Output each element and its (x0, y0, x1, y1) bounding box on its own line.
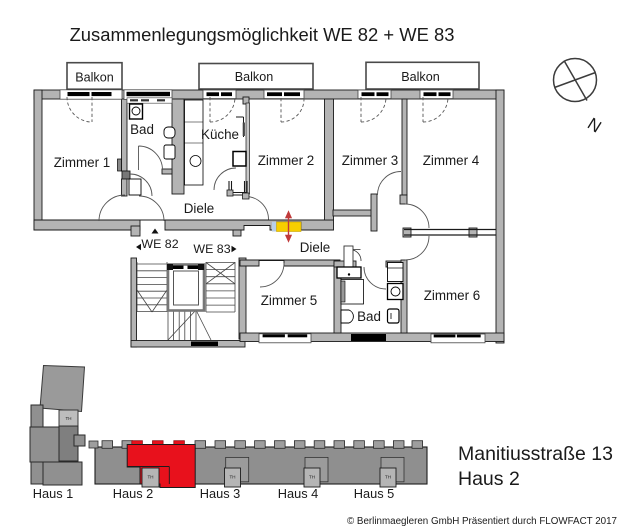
svg-text:TH: TH (66, 416, 72, 421)
svg-text:Balkon: Balkon (75, 71, 114, 85)
svg-text:Balkon: Balkon (401, 70, 440, 84)
svg-text:Haus 1: Haus 1 (33, 486, 74, 501)
svg-text:Diele: Diele (300, 240, 331, 255)
svg-text:Zimmer 3: Zimmer 3 (342, 153, 399, 168)
svg-text:Zusammenlegungsmöglichkeit WE: Zusammenlegungsmöglichkeit WE 82 + WE 83 (70, 24, 455, 45)
svg-text:TH: TH (385, 475, 391, 480)
svg-text:Manitiusstraße 13: Manitiusstraße 13 (458, 443, 613, 465)
svg-text:© Berlinmaegleren GmbH Präsent: © Berlinmaegleren GmbH Präsentiert durch… (347, 516, 617, 527)
svg-text:Haus 2: Haus 2 (113, 486, 154, 501)
svg-text:Bad: Bad (130, 122, 154, 137)
svg-text:Bad: Bad (357, 309, 381, 324)
svg-text:TH: TH (148, 475, 154, 480)
svg-text:Haus 2: Haus 2 (458, 468, 520, 490)
svg-text:Zimmer 5: Zimmer 5 (261, 293, 318, 308)
svg-text:Haus 4: Haus 4 (278, 486, 319, 501)
svg-text:Zimmer 4: Zimmer 4 (423, 153, 480, 168)
svg-text:Haus 5: Haus 5 (354, 486, 395, 501)
svg-text:Diele: Diele (184, 201, 215, 216)
svg-text:TH: TH (230, 475, 236, 480)
svg-text:Balkon: Balkon (235, 70, 274, 84)
svg-text:TH: TH (309, 475, 315, 480)
svg-text:Zimmer 2: Zimmer 2 (258, 153, 315, 168)
svg-text:WE 83: WE 83 (193, 242, 230, 256)
svg-text:Haus 3: Haus 3 (200, 486, 241, 501)
svg-text:Zimmer 1: Zimmer 1 (54, 155, 111, 170)
svg-text:Küche: Küche (201, 127, 239, 142)
svg-text:WE 82: WE 82 (141, 237, 178, 251)
svg-text:Zimmer 6: Zimmer 6 (424, 288, 481, 303)
